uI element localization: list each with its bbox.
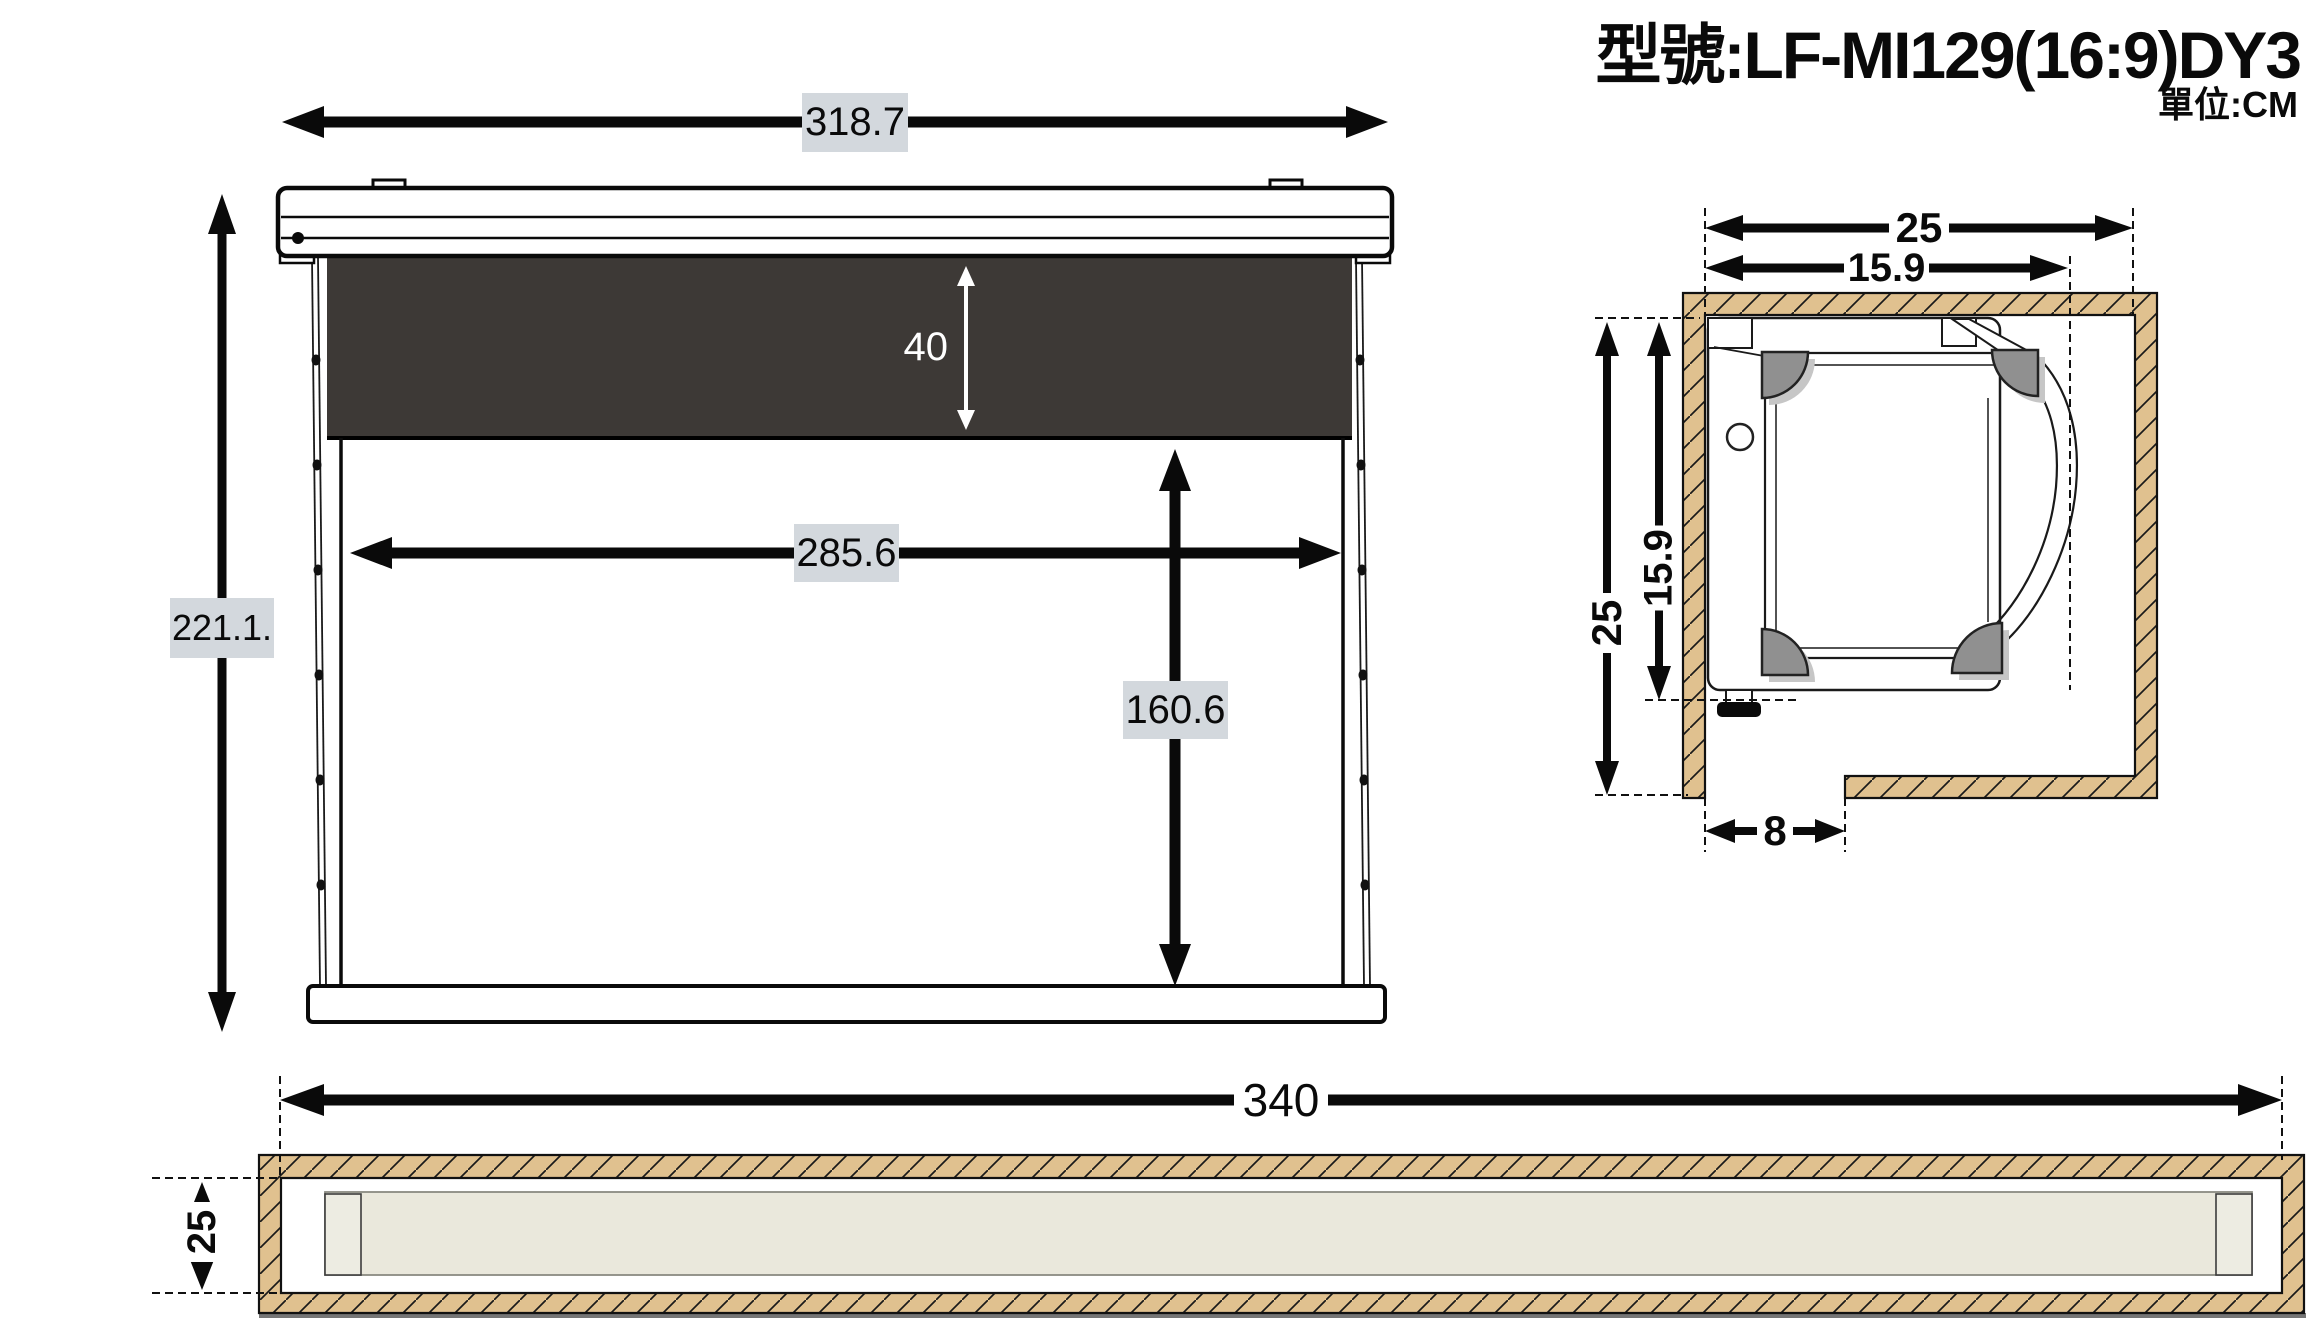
dim-viewing-width: 285.6 [794,524,899,582]
dim-viewing-height: 160.6 [1123,681,1228,739]
casing-bar-left-cap [325,1194,361,1275]
front-view [278,180,1392,1022]
dim-recess-depth: 25 [180,1202,224,1262]
rubber-foot [1717,702,1761,717]
dim-black-drop: 40 [878,325,948,369]
section-casing-body [1708,318,2000,690]
dim-case-height: 15.9 [1638,526,1680,611]
dim-wall-clearance: 8 [1757,809,1793,853]
screw-hole [1727,424,1753,450]
technical-drawing [0,0,2306,1318]
unit-label: 單位:CM [2158,76,2298,128]
end-screw [292,232,304,244]
dim-recess-width: 25 [1889,206,1949,250]
bottom-view [259,1155,2306,1318]
screen-casing [278,180,1392,263]
dim-total-height: 221.1. [170,598,274,658]
black-drop-band [327,256,1352,438]
side-section-view [1683,293,2157,798]
dim-total-length: 340 [1234,1074,1328,1126]
dimension-drawing-page: 型號:LF-MI129(16:9)DY3 單位:CM 318.7 221.1. … [0,0,2306,1318]
dim-case-width: 15.9 [1844,247,1929,289]
bottom-slat-bar [308,986,1385,1022]
dim-total-width: 318.7 [802,93,908,152]
dim-recess-height: 25 [1585,593,1629,653]
casing-bar [325,1192,2252,1275]
casing-bar-right-cap [2216,1194,2252,1275]
